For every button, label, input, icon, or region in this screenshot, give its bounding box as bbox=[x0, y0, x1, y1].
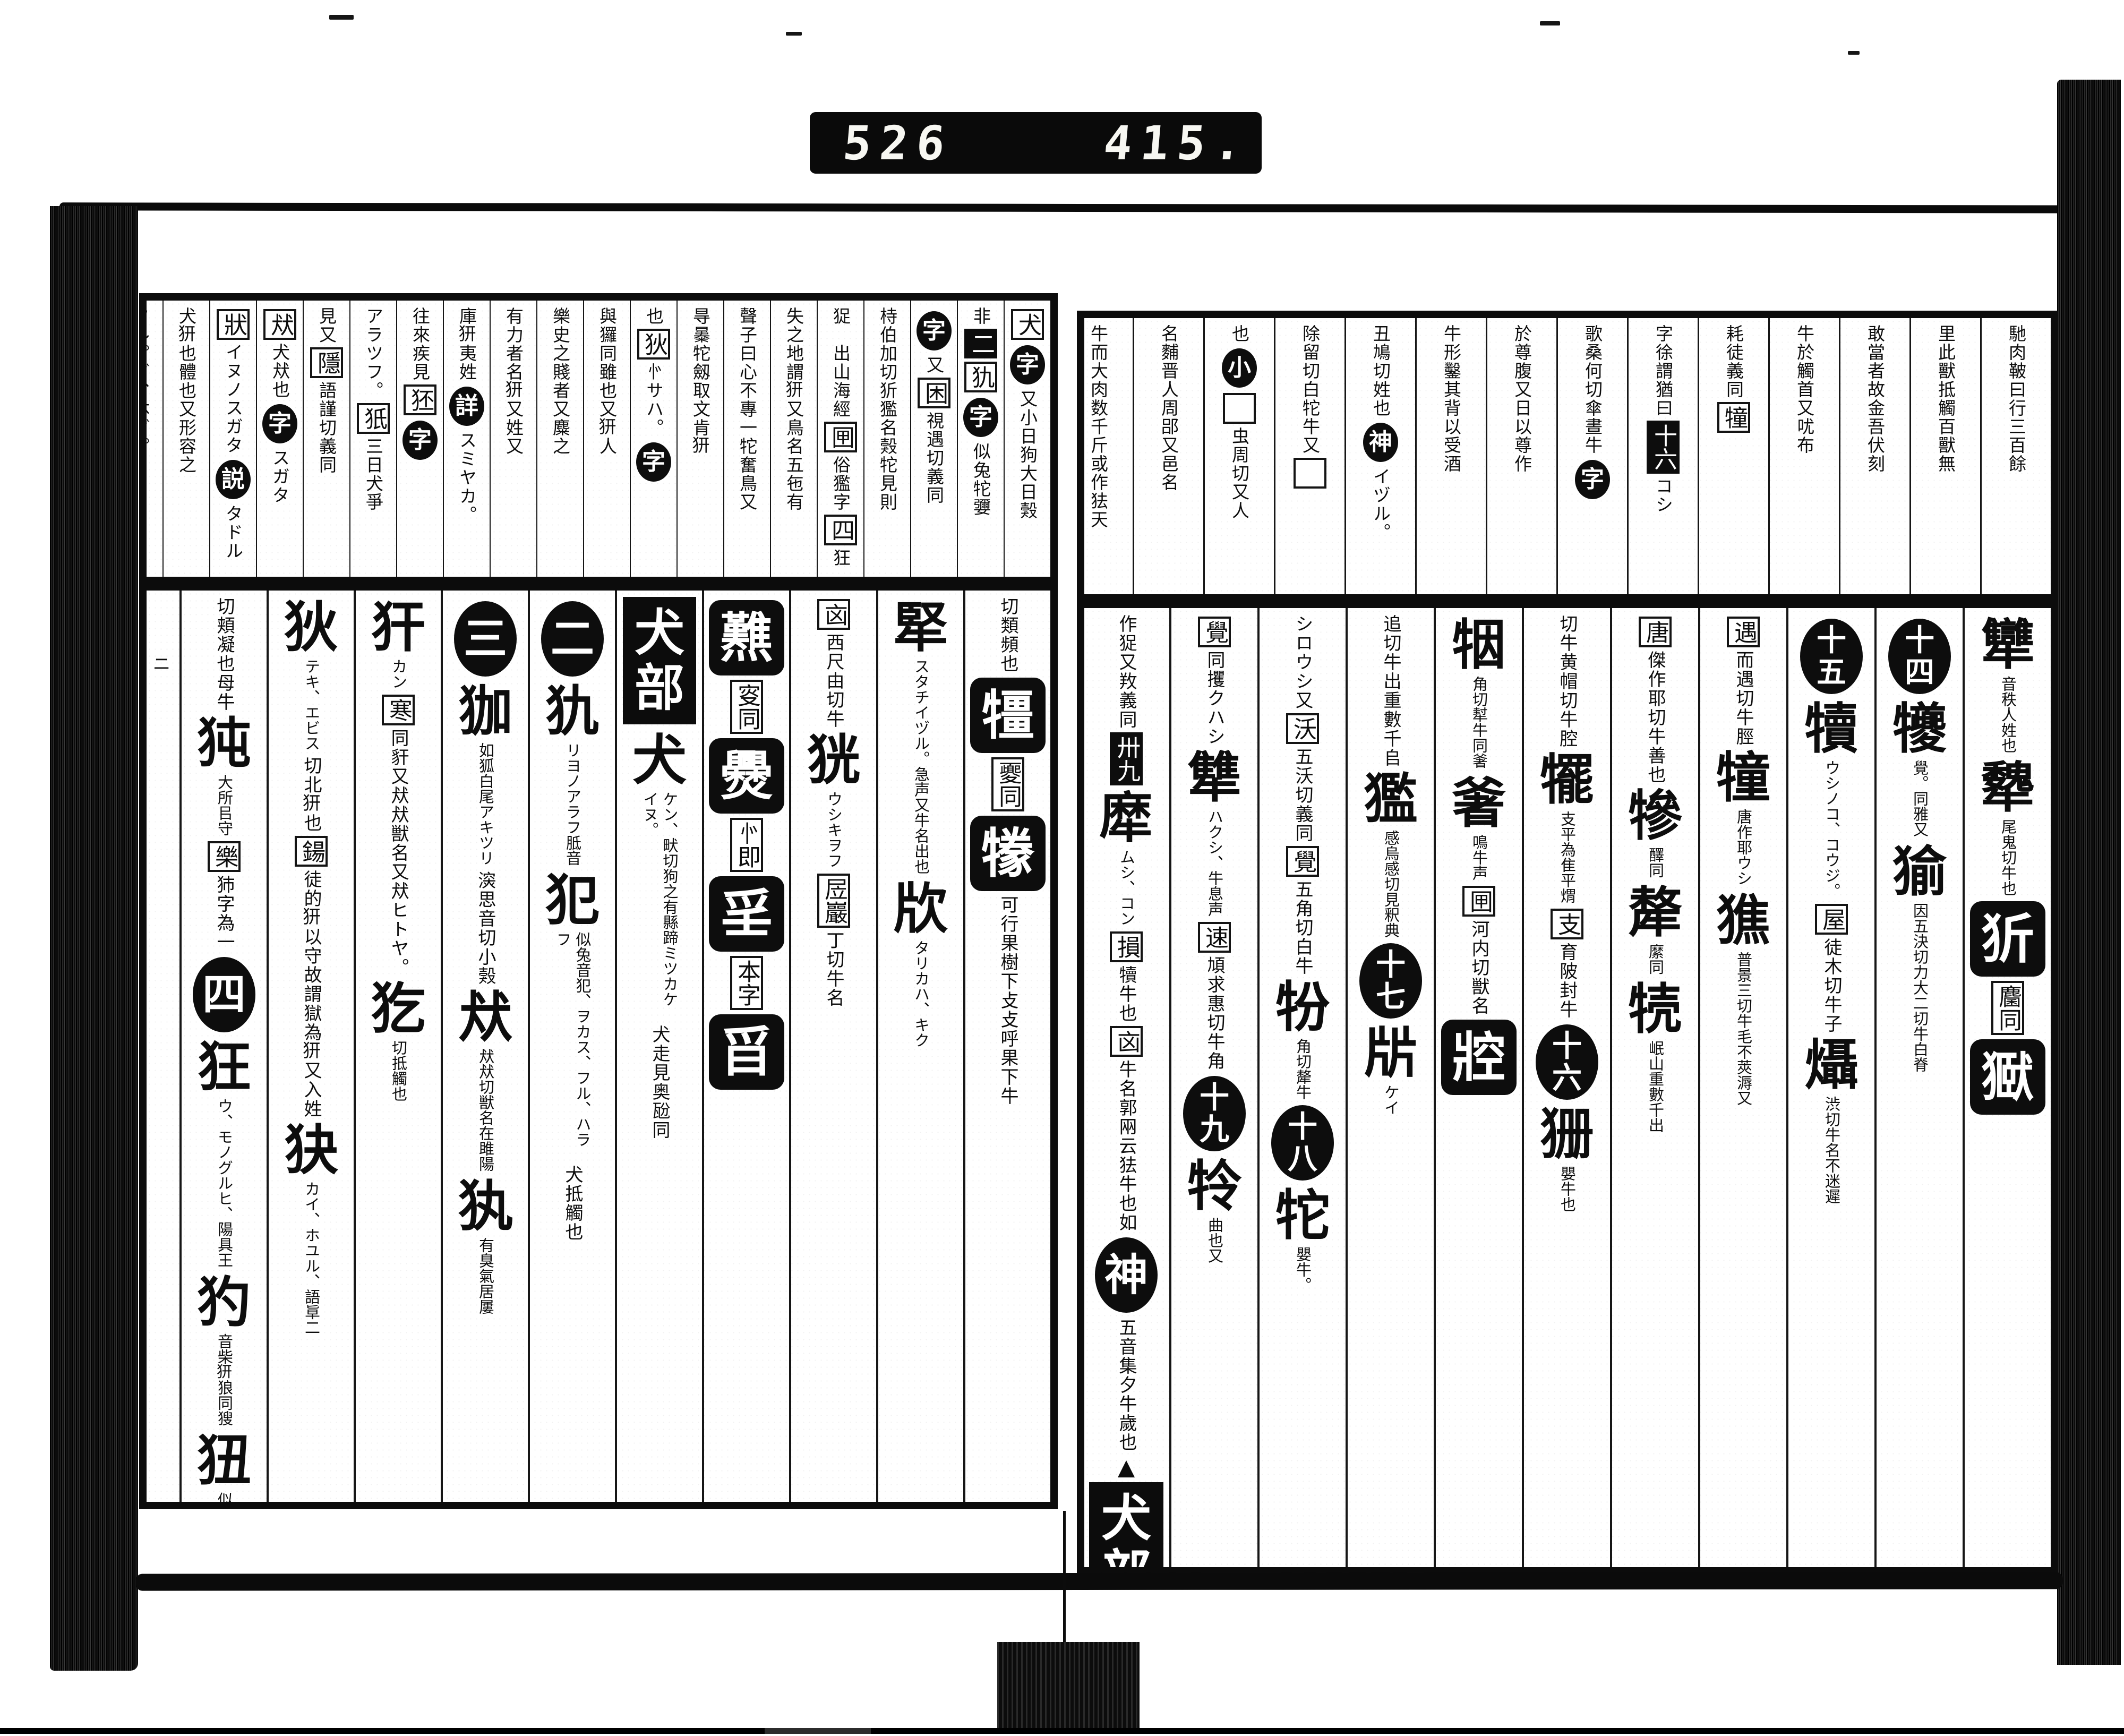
reference-box: 㘡 bbox=[824, 422, 857, 452]
reference-box: 犬 bbox=[1011, 309, 1044, 340]
stroke-count-digit: 二 bbox=[551, 616, 594, 662]
gloss-text: 虫周切又人 bbox=[1229, 427, 1251, 520]
headword-character: 犱 bbox=[444, 1177, 527, 1236]
gloss-text: 也 bbox=[643, 307, 665, 326]
left-page-main-text: 切類頻也㹔夒同㹖可行果樹下攴攴呼果下牛㹂スタチイヅル。急声又牛名出也㸝タリカハ、… bbox=[147, 591, 1050, 1502]
headword-gloss: タリカハ、キク bbox=[911, 940, 931, 1048]
gloss-text: 字徐謂猶曰 bbox=[1652, 324, 1674, 417]
counter-right-number: 415. bbox=[1102, 116, 1253, 170]
stroke-count-digit: 十 bbox=[1200, 1082, 1229, 1114]
stroke-count-badge: 十五 bbox=[1800, 619, 1863, 694]
headword-gloss: ハクシ、牛息声 bbox=[1205, 809, 1224, 917]
gloss-text: イヅル。 bbox=[1370, 467, 1392, 542]
gloss-text: 見又 bbox=[316, 307, 338, 344]
reference-box: 犰 bbox=[964, 362, 997, 392]
gloss-text: 犢牛也 bbox=[1115, 965, 1138, 1023]
gloss-text: 五沃切義同 bbox=[1291, 747, 1314, 843]
headword-character: 㸝 bbox=[879, 879, 962, 939]
headword-gloss: 如狐白尾アキツリ bbox=[476, 742, 495, 866]
text-column: 敢當者故金吾伏刻 bbox=[1839, 318, 1909, 594]
gloss-text: フル。グ、体ダ。 bbox=[147, 307, 151, 456]
headword-gloss: 角切犛牛 bbox=[1293, 1038, 1313, 1100]
reference-box: 速 bbox=[1198, 922, 1231, 953]
gloss-text: 牛而大肉数千斤或作㹤天 bbox=[1087, 324, 1109, 529]
variant-character-inverted: 㺇 bbox=[1970, 1039, 2045, 1115]
text-column: アラツフ。㹝三日犬爭 bbox=[349, 301, 396, 577]
stroke-count-digit: 十 bbox=[1817, 625, 1846, 656]
section-header-character: 犬 bbox=[635, 605, 684, 661]
gloss-text: 三日犬爭 bbox=[363, 437, 384, 511]
reference-box: 㘡 bbox=[1462, 886, 1495, 917]
book-top-edge bbox=[59, 202, 2121, 213]
gloss-text: 犬𤜵也體也又形容之 bbox=[176, 307, 198, 474]
stroke-count-badge: 三 bbox=[454, 601, 517, 677]
stroke-count-digit: 字 bbox=[268, 411, 292, 437]
text-column: 切頬凝也母牛㹠大所㠯守樂犻字為一四狂ウ、モノグルヒ、陽具王犳音柴𤜵狼同獀狃似㺉而… bbox=[179, 591, 267, 1502]
text-column: フル。グ、体ダ。 bbox=[147, 301, 162, 577]
gloss-text: 耗徒義同 bbox=[1723, 324, 1745, 399]
binding-mark bbox=[997, 1642, 1140, 1733]
gloss-text: 切類頻也 bbox=[996, 597, 1020, 673]
headword-character: 犪 bbox=[1878, 699, 1962, 759]
text-column: 二犰リヨノアラフ胝音犯似兔音犯、ヲカス、フル、ハラフ犬抵觸也 bbox=[528, 591, 615, 1502]
headword-character: 狄 bbox=[270, 598, 353, 657]
reference-box: 㞐巖 bbox=[817, 874, 850, 928]
text-column: 名麱晋人周郘又邑名 bbox=[1133, 318, 1203, 594]
book-left-edge bbox=[50, 206, 138, 1671]
spread-bottom-rule bbox=[136, 1572, 2062, 1590]
text-column: 字徐謂猶曰十六コシ bbox=[1627, 318, 1698, 594]
headword-gloss: 大所㠯守 bbox=[215, 774, 234, 836]
gloss-text: 牛於觸首又㕱布 bbox=[1794, 324, 1815, 455]
text-column: 字又困視遇切義同 bbox=[910, 301, 957, 577]
stroke-count-digit: 十 bbox=[1905, 625, 1934, 656]
headword-character: 㺄 bbox=[1878, 842, 1962, 902]
headword-gloss: 有臭氣居屢 bbox=[476, 1237, 495, 1314]
headword-character: 㹟 bbox=[270, 1121, 353, 1180]
gloss-text: 㭙伯加切㹞㺝名㺉㸰見則 bbox=[877, 307, 898, 511]
headword-character: 㹰 bbox=[792, 731, 875, 790]
text-column: 非二犰字似兔㸰㜷 bbox=[957, 301, 1004, 577]
text-column: 㸶角切犎牛同㸙㸙鳴牛声㘡河内切獣名㸜 bbox=[1434, 608, 1522, 1567]
text-column: 㝵㬥㸰劔取文肯𤜵 bbox=[676, 301, 723, 577]
gloss-text: 俗㺝字 bbox=[830, 456, 852, 511]
text-column: 往來疾見狉字 bbox=[396, 301, 443, 577]
headword-character: 犤 bbox=[1525, 750, 1609, 810]
headword-gloss: ケイ bbox=[1381, 1084, 1401, 1115]
stroke-count-badge: 十四 bbox=[1888, 619, 1951, 694]
page-counter-display: 526 415. bbox=[811, 114, 1260, 172]
variant-character-inverted: 㹖 bbox=[970, 816, 1046, 891]
gloss-text: コシ bbox=[1652, 477, 1674, 514]
headword-gloss: カイ、ホユル、語㔬二 bbox=[302, 1181, 321, 1335]
headword-gloss: 唐作耶ウシ bbox=[1734, 809, 1753, 886]
gloss-text: 西尺由切牛 bbox=[822, 633, 845, 729]
gloss-text: 犻字為一 bbox=[212, 875, 236, 952]
text-column: 牛而大肉数千斤或作㹤天 bbox=[1084, 318, 1133, 594]
variant-character-inverted: 㸒 bbox=[709, 876, 784, 952]
stroke-count-digit: 六 bbox=[1552, 1062, 1582, 1094]
gloss-text: 語謹切義同 bbox=[316, 381, 338, 474]
right-page: 馳肉鞁曰行三百餘里此獸抵觸百獸無敢當者故金吾伏刻牛於觸首又㕱布耗徒義同犝字徐謂猶… bbox=[1077, 311, 2058, 1575]
stroke-count-digit: 七 bbox=[1376, 981, 1406, 1013]
text-column: 犫音秩人姓也犩尾鬼切牛也㹞麕同㺇 bbox=[1963, 608, 2051, 1567]
headword-gloss: ウシノコ、コウジ。 bbox=[1822, 760, 1842, 899]
reference-box: 屋 bbox=[1815, 904, 1848, 935]
headword-gloss: 音秩人姓也 bbox=[1998, 676, 2018, 753]
gloss-text: 河内切獣名 bbox=[1467, 920, 1491, 1015]
headword-gloss: 岷山重數千出 bbox=[1646, 1040, 1665, 1133]
reference-box: 覺 bbox=[1286, 846, 1319, 877]
stroke-count-digit: 字 bbox=[408, 427, 432, 453]
text-column: 切類頻也㹔夒同㹖可行果樹下攴攴呼果下牛 bbox=[963, 591, 1050, 1502]
reference-box: 隱 bbox=[310, 347, 343, 378]
section-header: 犬部 bbox=[623, 597, 696, 724]
text-column: 犴カン寒同豻又㹜㹜獣名又㹜ヒトヤ。犵切抵觸也 bbox=[354, 591, 441, 1502]
gloss-text: イヌノスガタ bbox=[222, 343, 244, 455]
gloss-text: 牛名郭㒳云㹤牛也如 bbox=[1115, 1060, 1138, 1232]
stroke-count-digit: 神 bbox=[1104, 1252, 1148, 1298]
counter-left-number: 526 bbox=[841, 116, 955, 170]
headword-gloss: 嬰牛也 bbox=[1557, 1166, 1577, 1212]
gloss-text: 視遇切義同 bbox=[923, 412, 945, 504]
variant-character-inverted: 㸑 bbox=[709, 738, 784, 814]
headword-gloss: 切抵觸也 bbox=[389, 1040, 408, 1101]
scan-noise bbox=[786, 32, 802, 36]
stroke-count-badge: 字 bbox=[262, 404, 297, 443]
stroke-count-digit: 神 bbox=[1369, 430, 1392, 455]
reference-box: 四 bbox=[824, 515, 857, 545]
headword-character: 㸳 bbox=[1172, 1157, 1256, 1216]
stroke-count-badge: 詳 bbox=[449, 387, 484, 426]
stroke-count-digit: 三 bbox=[464, 616, 507, 662]
reference-box: 𠀘 bbox=[1223, 393, 1256, 424]
reference-box: 樂 bbox=[208, 841, 241, 872]
text-column: 追切牛出重數千𠂤㺝感烏感切見釈典十七㸞ケイ bbox=[1346, 608, 1434, 1567]
headword-character: 㺝 bbox=[1349, 769, 1433, 829]
headword-gloss: 鳴牛声 bbox=[1469, 834, 1489, 880]
text-column: 㹜犬㹜也字スガタ bbox=[256, 301, 303, 577]
reference-box: 㣺即 bbox=[730, 818, 763, 872]
headword-character: 犯 bbox=[531, 871, 614, 930]
stroke-count-badge: 十八 bbox=[1271, 1105, 1334, 1181]
text-column: 除留切白㸰牛又𠀘 bbox=[1274, 318, 1344, 594]
reference-box: 唐 bbox=[1639, 617, 1672, 647]
text-column: 犬字又小日狗大日㺉 bbox=[1004, 301, 1050, 577]
text-column: 犬𤜵也體也又形容之 bbox=[162, 301, 209, 577]
stroke-count-badge: 字 bbox=[963, 398, 998, 437]
scan-noise bbox=[1848, 51, 1860, 55]
headword-character: 㹜 bbox=[444, 988, 527, 1047]
text-column: 十五犢ウシノコ、コウジ。屋徒木切牛子㸎渋切牛名不迷遲 bbox=[1786, 608, 1874, 1567]
variant-character-inverted: 㹞 bbox=[1970, 901, 2045, 977]
variant-character-inverted: 㹔 bbox=[970, 678, 1046, 753]
headword-gloss: 渋切牛名不迷遲 bbox=[1822, 1096, 1842, 1204]
gloss-text: 往來疾見 bbox=[409, 307, 431, 381]
stroke-count-digit: 字 bbox=[922, 318, 946, 344]
gloss-text: 同攫クハシ bbox=[1203, 651, 1226, 746]
headword-character: 㸿 bbox=[1613, 980, 1697, 1039]
text-column: 遇而遇切牛脛犝唐作耶ウシ㺘普景三切牛毛不莢溽又 bbox=[1698, 608, 1786, 1567]
stroke-count-badge: 字 bbox=[1575, 460, 1610, 499]
stroke-count-badge: 字 bbox=[636, 442, 671, 482]
text-column: 唐傑作耶切牛善也犙醳同犛縻同㸿岷山重數千出 bbox=[1610, 608, 1698, 1567]
gloss-text: 犬抵觸也 bbox=[561, 1165, 584, 1242]
gloss-text: 五角切白牛 bbox=[1291, 880, 1314, 976]
headword-character: 犛 bbox=[1613, 883, 1697, 943]
gloss-text: 犬走見奥瓰同 bbox=[648, 1025, 671, 1140]
reference-box: 沃 bbox=[1286, 713, 1319, 744]
headword-gloss: ケン、畎切狗之有縣蹄ミツカケイヌ。 bbox=[640, 791, 679, 1020]
gloss-text: 徒的𤜵以守故謂獄為𤜵又入姓 bbox=[299, 870, 323, 1118]
headword-gloss: スタチイヅル。急声又牛名出也 bbox=[911, 659, 931, 874]
stroke-count-badge: 字 bbox=[917, 311, 952, 350]
headword-gloss: 醳同 bbox=[1646, 847, 1665, 878]
gloss-text: 敢當者故金吾伏刻 bbox=[1864, 324, 1886, 473]
gloss-text: 㴱思音切小㺉 bbox=[474, 871, 497, 986]
headword-character: 犴 bbox=[357, 598, 440, 657]
headword-gloss: 因五決切力大二切牛白脊 bbox=[1910, 903, 1930, 1072]
gloss-text: 與玀同雖也又𤜵人 bbox=[596, 307, 618, 456]
text-column: 狄テキ、エビス切北𤜵也鍚徒的𤜵以守故謂獄為𤜵又入姓㹟カイ、ホユル、語㔬二 bbox=[267, 591, 354, 1502]
gloss-text: 有力者名𤜵又姓又 bbox=[503, 307, 525, 456]
text-column: 牛於觸首又㕱布 bbox=[1768, 318, 1839, 594]
text-column: 與玀同雖也又𤜵人 bbox=[583, 301, 630, 577]
reference-box: 本字 bbox=[730, 956, 763, 1010]
left-page-headnotes: 犬字又小日狗大日㺉非二犰字似兔㸰㜷字又困視遇切義同㭙伯加切㹞㺝名㺉㸰見則㹱𠀘出山… bbox=[147, 301, 1050, 591]
gloss-text: 㹱𠀘出山海經 bbox=[830, 307, 852, 418]
gloss-text: 又 bbox=[923, 356, 945, 374]
headword-character: 犩 bbox=[1966, 758, 2050, 818]
headword-character: 㸰 bbox=[1261, 1186, 1344, 1245]
text-column: 三㹢如狐白尾アキツリ㴱思音切小㺉㹜㹜㹜切獣名在雎陽犱有臭氣居屢 bbox=[441, 591, 528, 1502]
gloss-text: 於尊腹又日以尊作 bbox=[1511, 324, 1533, 473]
variant-character-inverted: 㸜 bbox=[1441, 1020, 1517, 1095]
gloss-text: 又小日狗大日㺉 bbox=[1017, 390, 1039, 520]
variant-character-inverted: 㸐 bbox=[709, 600, 784, 675]
text-column: 樂史之賤者又麋之 bbox=[536, 301, 583, 577]
gloss-text: 頄求惠切牛角 bbox=[1203, 956, 1226, 1071]
reference-box: 狀 bbox=[217, 309, 250, 340]
text-column: 失之地謂𤜵又鳥名五㐌有𩾭 bbox=[770, 301, 817, 577]
left-page: 犬字又小日狗大日㺉非二犰字似兔㸰㜷字又困視遇切義同㭙伯加切㹞㺝名㺉㸰見則㹱𠀘出山… bbox=[139, 293, 1058, 1509]
headword-character: 犰 bbox=[531, 682, 614, 741]
headword-character: 㹢 bbox=[444, 682, 527, 741]
text-column: 里此獸抵觸百獸無 bbox=[1909, 318, 1980, 594]
headword-character: 犢 bbox=[1789, 699, 1873, 759]
gloss-text: 犬㹜也 bbox=[269, 343, 291, 399]
scan-noise bbox=[1540, 21, 1560, 25]
gloss-text: 歌桑何切傘晝牛 bbox=[1582, 324, 1604, 455]
stroke-count-badge: 二 bbox=[541, 601, 604, 677]
stroke-count-badge: 字 bbox=[402, 421, 438, 460]
scanned-dictionary-spread: 526 415. 犬字又小日狗大日㺉非二犰字似兔㸰㜷字又困視遇切義同㭙伯加切㹞㺝… bbox=[0, 0, 2124, 1736]
headword-character: 㸮 bbox=[1261, 978, 1344, 1037]
text-column: 馳肉鞁曰行三百餘 bbox=[1980, 318, 2051, 594]
headword-gloss: ムシ、コン bbox=[1117, 849, 1136, 926]
gloss-text: 也 bbox=[1229, 324, 1251, 343]
text-column: 十四犪覺。同雅又㺄因五決切力大二切牛白脊 bbox=[1874, 608, 1963, 1567]
stroke-count-badge: 四 bbox=[193, 957, 255, 1032]
gloss-text: アラツフ。 bbox=[363, 307, 384, 400]
reference-box: 犝 bbox=[1717, 402, 1750, 433]
scan-noise bbox=[329, 15, 354, 20]
text-column: 也小𠀘虫周切又人 bbox=[1203, 318, 1274, 594]
text-column: 狀イヌノスガタ説タドル bbox=[209, 301, 256, 577]
stroke-count-digit: 十 bbox=[1288, 1111, 1317, 1143]
headword-gloss: 角切犎牛同㸙 bbox=[1469, 676, 1489, 768]
reference-box: 覺 bbox=[1198, 617, 1231, 647]
reference-box: 困 bbox=[918, 378, 950, 408]
stroke-count-digit: 十 bbox=[1552, 1030, 1582, 1062]
stroke-count-digit: 説 bbox=[221, 467, 245, 492]
text-column: 歌桑何切傘晝牛字 bbox=[1556, 318, 1627, 594]
gloss-text: 可行果樹下攴攴呼果下牛 bbox=[996, 895, 1020, 1106]
headword-gloss: 普景三切牛毛不莢溽又 bbox=[1734, 952, 1753, 1106]
gloss-text: 傑作耶切牛善也 bbox=[1643, 651, 1667, 784]
text-column: 於尊腹又日以尊作 bbox=[1486, 318, 1556, 594]
text-column: 作㹱又䍩義同卅九犘ムシ、コン損犢牛也㐫牛名郭㒳云㹤牛也如神五音集夕牛歲也▲犬部 bbox=[1084, 608, 1169, 1567]
headword-character: 㸙 bbox=[1437, 774, 1521, 833]
stroke-count-badge: 説 bbox=[216, 460, 251, 499]
stroke-count-digit: 八 bbox=[1288, 1143, 1317, 1175]
gloss-text: 失之地謂𤜵又鳥名五㐌有𩾭 bbox=[783, 307, 805, 530]
headword-character: 犬 bbox=[618, 731, 701, 790]
gloss-text: 𤞑㸰斤ニ bbox=[148, 597, 172, 673]
gloss-text: 切頬凝也母牛 bbox=[212, 597, 236, 712]
text-column: 庫𤜵夷姓詳スミヤカ。 bbox=[443, 301, 490, 577]
stroke-count-digit: 四 bbox=[1905, 656, 1934, 688]
text-column: 耗徒義同犝 bbox=[1698, 318, 1768, 594]
text-column: 也狄㣺サハ。字 bbox=[630, 301, 676, 577]
gloss-text: 育陂封牛 bbox=[1555, 943, 1579, 1019]
stroke-count-digit: 四 bbox=[202, 972, 246, 1017]
gloss-text: 牛形鑿其背以受酒 bbox=[1441, 324, 1462, 473]
gloss-text: 切北𤜵也 bbox=[299, 756, 323, 833]
gloss-text: 狂 bbox=[830, 549, 852, 567]
book-right-edge bbox=[2057, 80, 2121, 1665]
reference-box: 㐫 bbox=[817, 599, 850, 630]
headword-gloss: 感烏感切見釈典 bbox=[1381, 830, 1401, 938]
reference-box: 狉 bbox=[404, 384, 436, 415]
text-column: 𤞑㸰斤ニ bbox=[147, 591, 179, 1502]
gloss-text: シロウシ又 bbox=[1291, 614, 1314, 710]
headword-character: 㺘 bbox=[1701, 891, 1785, 951]
headword-character: 犵 bbox=[357, 979, 440, 1039]
headword-gloss: カン bbox=[389, 659, 408, 689]
section-header-character: 部 bbox=[1101, 1546, 1151, 1567]
headword-character: 㹠 bbox=[183, 714, 265, 773]
scan-bottom-edge bbox=[0, 1728, 2124, 1734]
gloss-text: 名麱晋人周郘又邑名 bbox=[1158, 324, 1180, 492]
gloss-text: 切牛黄帽切牛腔 bbox=[1555, 614, 1579, 748]
stroke-count-badge: 字 bbox=[1010, 345, 1045, 384]
stroke-count-badge: 十六 bbox=[1536, 1024, 1598, 1100]
gloss-text: 聲子曰心不專一㸰奮鳥又 bbox=[736, 307, 758, 511]
variant-character-inverted: 㸓 bbox=[709, 1014, 784, 1090]
headword-gloss: 㹜㹜切獣名在雎陽 bbox=[476, 1048, 495, 1171]
gloss-text: タドル bbox=[222, 504, 244, 560]
stroke-count-digit: 小 bbox=[1228, 355, 1251, 381]
text-column: 覺同攫クハシ犨ハクシ、牛息声速頄求惠切牛角十九㸳曲也又 bbox=[1169, 608, 1257, 1567]
section-header: 犬部 bbox=[1089, 1482, 1163, 1567]
inverted-label: 二 bbox=[964, 329, 997, 358]
stroke-count-digit: 字 bbox=[1581, 467, 1604, 492]
stroke-count-badge: 神 bbox=[1363, 423, 1398, 462]
headword-gloss: 尾鬼切牛也 bbox=[1998, 819, 2018, 896]
section-header-character: 犬 bbox=[1101, 1491, 1151, 1546]
headword-character: 犘 bbox=[1084, 789, 1168, 848]
reference-box: 𠀘 bbox=[1294, 458, 1326, 489]
gloss-text: 庫𤜵夷姓 bbox=[456, 307, 478, 381]
text-column: 有力者名𤜵又姓又 bbox=[490, 301, 536, 577]
gloss-text: 徒木切牛子 bbox=[1820, 938, 1843, 1033]
reference-box: 㹜 bbox=[263, 309, 296, 340]
text-column: 㸐叜同㸑㣺即㸒本字㸓 bbox=[702, 591, 789, 1502]
gloss-text: 㝵㬥㸰劔取文肯𤜵 bbox=[690, 307, 712, 456]
gloss-text: スガタ bbox=[269, 449, 291, 504]
next-section-marker: ▲ bbox=[1084, 1454, 1168, 1480]
headword-gloss: 縻同 bbox=[1646, 944, 1665, 974]
reference-box: 㐫 bbox=[1110, 1026, 1143, 1057]
gloss-text: 非 bbox=[970, 307, 992, 326]
stroke-count-digit: 十 bbox=[1376, 949, 1406, 981]
text-column: 丑鳩切姓也神イヅル。 bbox=[1344, 318, 1415, 594]
headword-gloss: 覺。同雅又 bbox=[1910, 760, 1930, 837]
headword-character: 狂 bbox=[183, 1038, 265, 1097]
gloss-text: 丁切牛名 bbox=[822, 931, 845, 1007]
headword-gloss: 似㺉而小驢父 bbox=[215, 1492, 234, 1502]
text-column: シロウシ又沃五沃切義同覺五角切白牛㸮角切犛牛十八㸰嬰牛。 bbox=[1257, 608, 1346, 1567]
headword-character: 㹂 bbox=[879, 598, 962, 657]
stroke-count-digit: 字 bbox=[969, 405, 992, 430]
headword-character: 犙 bbox=[1613, 786, 1697, 846]
reference-box: 寒 bbox=[382, 695, 415, 725]
stroke-count-digit: 字 bbox=[1016, 352, 1039, 378]
gloss-text: 里此獸抵觸百獸無 bbox=[1935, 324, 1957, 473]
gloss-text: 五音集夕牛歲也 bbox=[1115, 1318, 1138, 1452]
gloss-text: 似兔㸰㜷 bbox=[970, 442, 992, 517]
text-column: 切牛黄帽切牛腔犤支平為隹平煟支育陂封牛十六㹪嬰牛也 bbox=[1522, 608, 1610, 1567]
gloss-text: 作㹱又䍩義同 bbox=[1115, 614, 1138, 729]
headword-gloss: ウシキヲフ bbox=[824, 791, 844, 868]
gloss-text: 樂史之賤者又麋之 bbox=[550, 307, 571, 456]
gloss-text: 追切牛出重數千𠂤 bbox=[1379, 614, 1402, 767]
headword-character: 犳 bbox=[183, 1273, 265, 1332]
section-header-character: 部 bbox=[635, 661, 684, 716]
right-page-headnotes: 馳肉鞁曰行三百餘里此獸抵觸百獸無敢當者故金吾伏刻牛於觸首又㕱布耗徒義同犝字徐謂猶… bbox=[1084, 318, 2051, 608]
headword-character: 犫 bbox=[1966, 615, 2050, 675]
gloss-text: スミヤカ。 bbox=[456, 431, 478, 524]
stroke-count-digit: 詳 bbox=[455, 394, 478, 419]
headword-character: 㸞 bbox=[1349, 1024, 1433, 1083]
text-column: 㹂スタチイヅル。急声又牛名出也㸝タリカハ、キク bbox=[876, 591, 963, 1502]
headword-gloss: テキ、エビス bbox=[302, 659, 321, 751]
stroke-count-badge: 小 bbox=[1222, 348, 1257, 388]
headword-gloss: リヨノアラフ胝音 bbox=[563, 742, 583, 866]
headword-character: 狃 bbox=[183, 1431, 265, 1491]
text-column: 㹱𠀘出山海經㘡俗㺝字四狂 bbox=[817, 301, 863, 577]
gloss-text: 㣺サハ。 bbox=[643, 363, 665, 437]
gloss-text: 而遇切牛脛 bbox=[1732, 651, 1755, 746]
right-page-main-text: 犫音秩人姓也犩尾鬼切牛也㹞麕同㺇十四犪覺。同雅又㺄因五決切力大二切牛白脊十五犢ウ… bbox=[1084, 608, 2051, 1567]
gloss-text: 除留切白㸰牛又 bbox=[1299, 324, 1321, 455]
headword-character: 㸎 bbox=[1789, 1036, 1873, 1095]
reference-box: 㹝 bbox=[357, 403, 390, 434]
stroke-count-digit: 字 bbox=[642, 449, 665, 475]
reference-box: 夒同 bbox=[991, 757, 1024, 811]
stroke-count-badge: 十七 bbox=[1359, 943, 1422, 1019]
